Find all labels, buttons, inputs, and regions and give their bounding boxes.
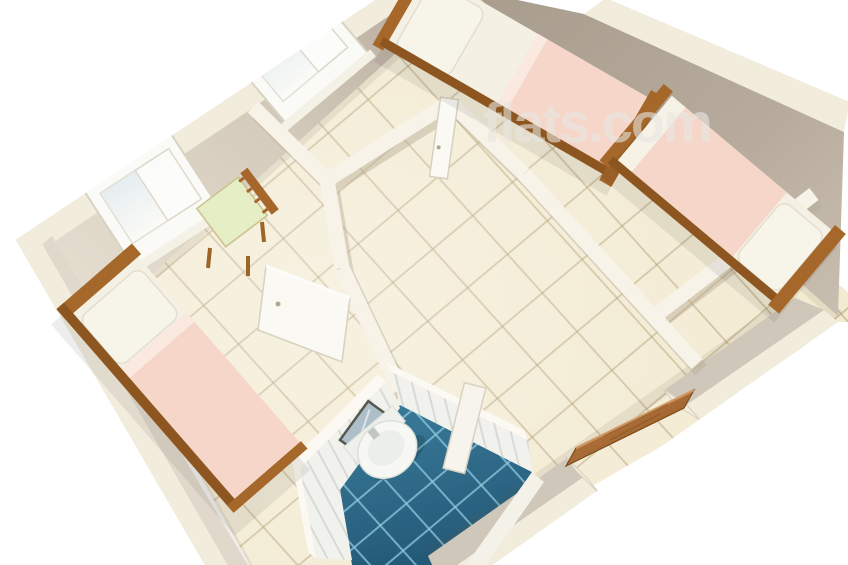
door-handle <box>276 302 281 307</box>
watermark: flats.com <box>483 91 711 154</box>
floorplan-3d-render: flats.com <box>0 0 848 565</box>
floorplan-render-stage: flats.com <box>0 0 848 565</box>
